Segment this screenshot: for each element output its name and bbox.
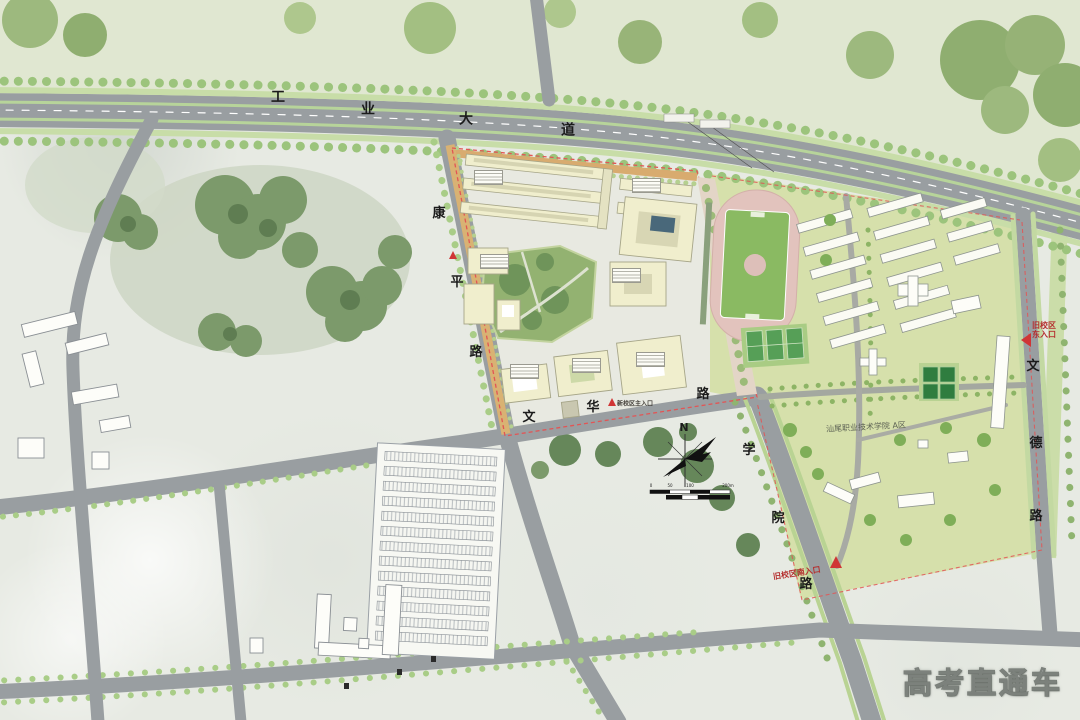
building-annotation: [572, 358, 601, 373]
building-annotation: [612, 268, 641, 283]
ball-courts: [741, 324, 810, 369]
southwest-building-cluster: [314, 581, 402, 659]
xueyuan-road-label-char: 院: [771, 512, 784, 526]
industrial-avenue-label-char: 工: [271, 90, 285, 105]
wenhua-road-label-char: 文: [522, 411, 535, 425]
kangping-road-label-char: 路: [469, 346, 482, 360]
campus-court-building: [619, 197, 697, 262]
building-annotation: [480, 254, 509, 269]
site-plan-drawing: [0, 0, 1080, 720]
wende-road-label-char: 文: [1026, 360, 1039, 374]
xueyuan-road-label-char: 路: [799, 578, 812, 592]
wenhua-road-label-char: 路: [696, 388, 709, 402]
scale-tick-label: 0: [650, 484, 653, 488]
campus-master-plan-map: 工 业 大 道 康 平 路 文 华 路 学 院 路 文 德 路 旧校区东入口 旧…: [0, 0, 1080, 720]
building-annotation: [474, 170, 503, 185]
tennis-courts: [919, 363, 959, 401]
building-annotation: [632, 178, 661, 193]
industrial-avenue-label-char: 道: [561, 123, 575, 138]
watermark: 高考直通车: [903, 660, 1063, 702]
wende-road-label-char: 路: [1029, 510, 1042, 524]
scale-tick-label: 200m: [722, 484, 734, 488]
building-annotation: [636, 352, 665, 367]
scale-tick-label: 100: [686, 484, 694, 488]
main-entrance-label: 新校区主入口: [617, 402, 653, 409]
wenhua-road-label-char: 华: [586, 401, 599, 415]
scale-tick-label: 50: [667, 484, 672, 488]
wende-road-label-char: 德: [1029, 437, 1042, 451]
industrial-avenue-label-char: 大: [459, 112, 473, 127]
kangping-road-label-char: 平: [450, 276, 463, 290]
compass-north-label: N: [679, 422, 688, 434]
east-entrance-label: 旧校区东入口: [1032, 322, 1056, 340]
kangping-road-label-char: 康: [432, 207, 445, 221]
building-annotation: [510, 364, 539, 379]
industrial-avenue-label-char: 业: [361, 102, 375, 117]
xueyuan-road-label-char: 学: [742, 444, 755, 458]
west-blocks-vegetation: [25, 137, 412, 357]
